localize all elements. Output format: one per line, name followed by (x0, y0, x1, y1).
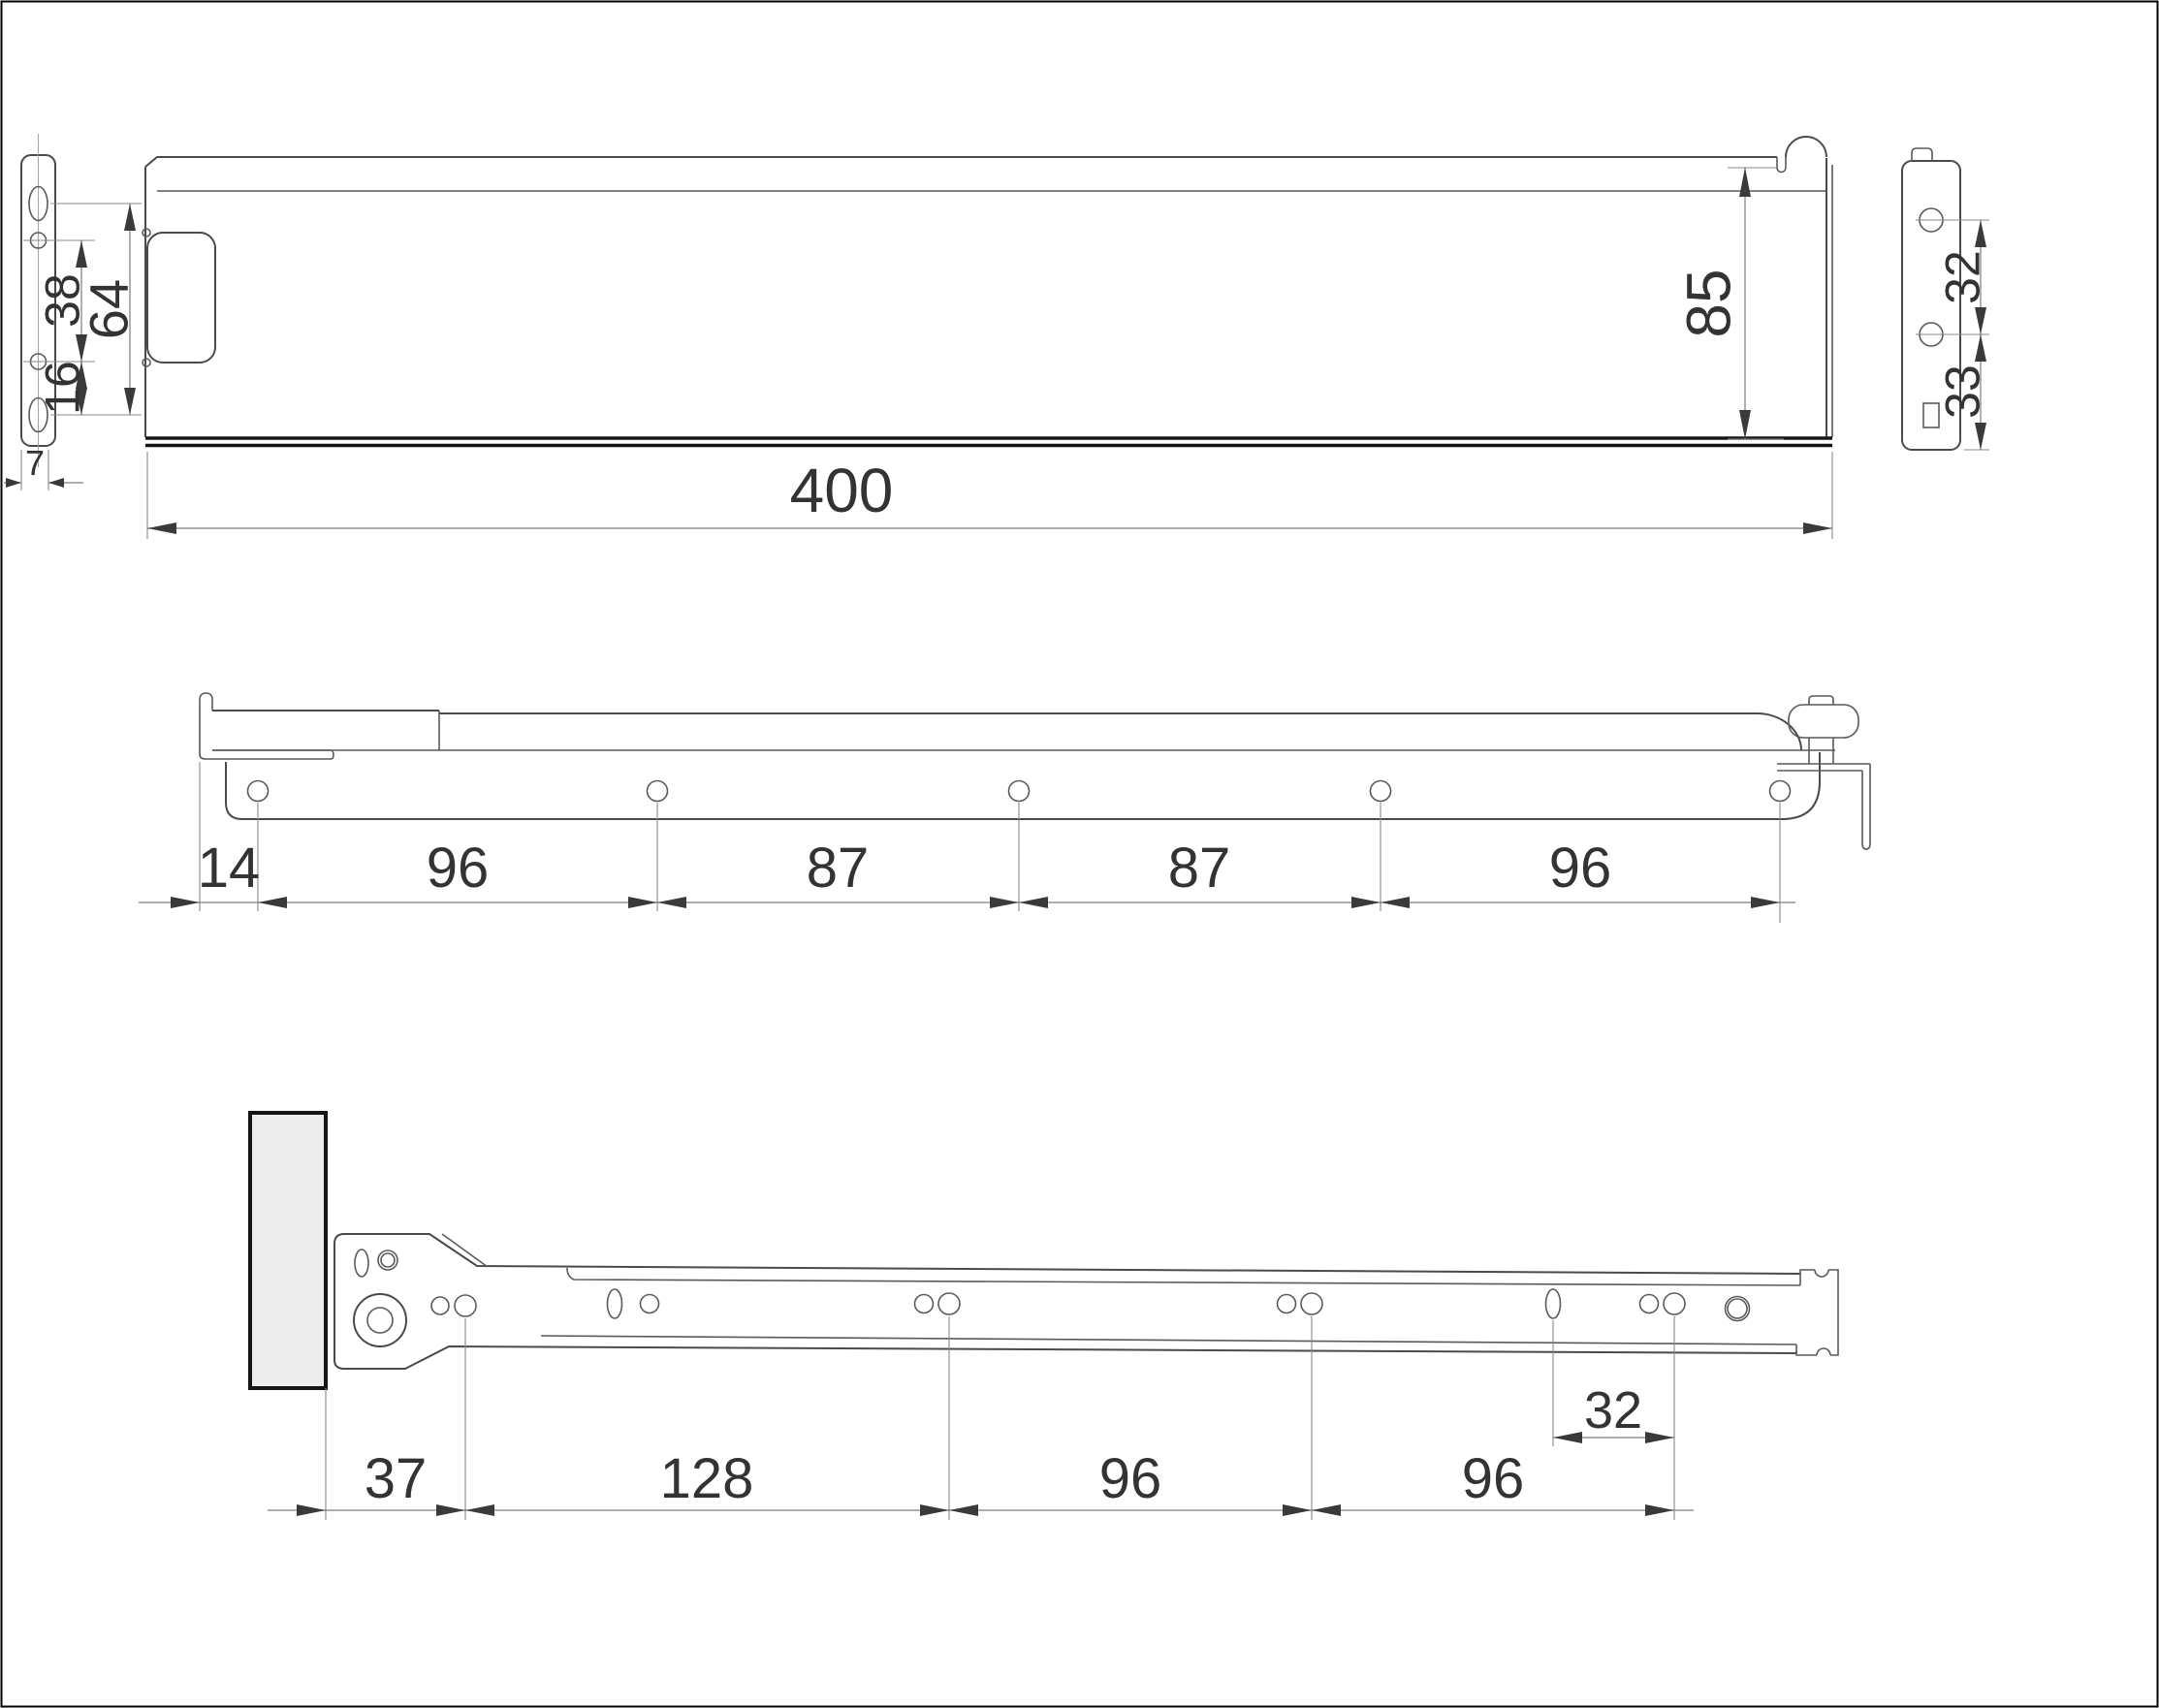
cabinet-rail-view: 32 37 128 96 96 (250, 1113, 1838, 1520)
dim-label-400: 400 (790, 456, 894, 525)
dim-label-96c: 96 (1099, 1447, 1162, 1510)
dim-label-87b: 87 (1168, 837, 1231, 900)
rear-notch (1777, 157, 1786, 173)
dim-label-96a: 96 (427, 837, 490, 900)
dim-label-16: 16 (36, 361, 90, 415)
rail-rear-end (1796, 1270, 1838, 1355)
pivot-hole-outer (354, 1294, 406, 1346)
dim-label-32-rail: 32 (1584, 1381, 1642, 1439)
page-border (2, 2, 2158, 1707)
cabinet-rail-outline (334, 1234, 1838, 1369)
front-hook (200, 693, 212, 755)
panel-dimensions: 400 85 (147, 168, 1832, 539)
cabinet-front-panel (250, 1113, 326, 1388)
rear-hole-outer (1726, 1297, 1750, 1321)
drawer-rail-view: 14 96 87 87 96 (139, 693, 1870, 923)
rail-hole-3 (1009, 781, 1030, 802)
drawer-side-panel (143, 137, 1832, 446)
dim-label-32-plate: 32 (1936, 250, 1990, 304)
hole-a (455, 1295, 476, 1316)
dim-label-87a: 87 (807, 837, 870, 900)
drawer-rail-dimensions: 14 96 87 87 96 (139, 762, 1795, 923)
bracket-slot (355, 1249, 368, 1277)
top-tab (1912, 148, 1932, 161)
hole-b (938, 1293, 960, 1314)
drawing-svg: 38 16 64 7 (0, 0, 2159, 1708)
rail-hole-4 (1371, 781, 1391, 802)
dim-label-37: 37 (365, 1447, 428, 1510)
rail-slot-2 (1546, 1289, 1561, 1318)
hole-a-left (431, 1297, 449, 1314)
dim-label-7: 7 (25, 443, 45, 483)
technical-drawing-canvas: 38 16 64 7 (0, 0, 2159, 1708)
dim-label-96b: 96 (1549, 837, 1612, 900)
pivot-hole-inner (367, 1308, 393, 1333)
dim-label-64: 64 (79, 279, 140, 339)
dim-label-85: 85 (1673, 269, 1743, 337)
rail-hole-5 (1770, 781, 1791, 802)
dim-label-96d: 96 (1462, 1447, 1525, 1510)
rear-bracket-flange (1862, 764, 1870, 849)
rear-hook-knob (1786, 137, 1826, 157)
hole-c (1301, 1293, 1322, 1314)
dim-label-14: 14 (198, 837, 261, 900)
rail-hole-1 (248, 781, 269, 802)
dim-label-128: 128 (660, 1447, 754, 1510)
rear-roller-wheel (1789, 705, 1858, 738)
dim-label-33: 33 (1936, 364, 1990, 419)
rail-hole-2 (648, 781, 668, 802)
rail-slot-1 (608, 1289, 622, 1318)
side-view: 38 16 64 7 (4, 134, 1990, 539)
front-plate-dimensions: 38 16 64 7 (4, 204, 140, 490)
drawer-rail-outline (200, 693, 1870, 849)
handle-cutout (147, 233, 215, 363)
hole-d (1664, 1293, 1685, 1314)
